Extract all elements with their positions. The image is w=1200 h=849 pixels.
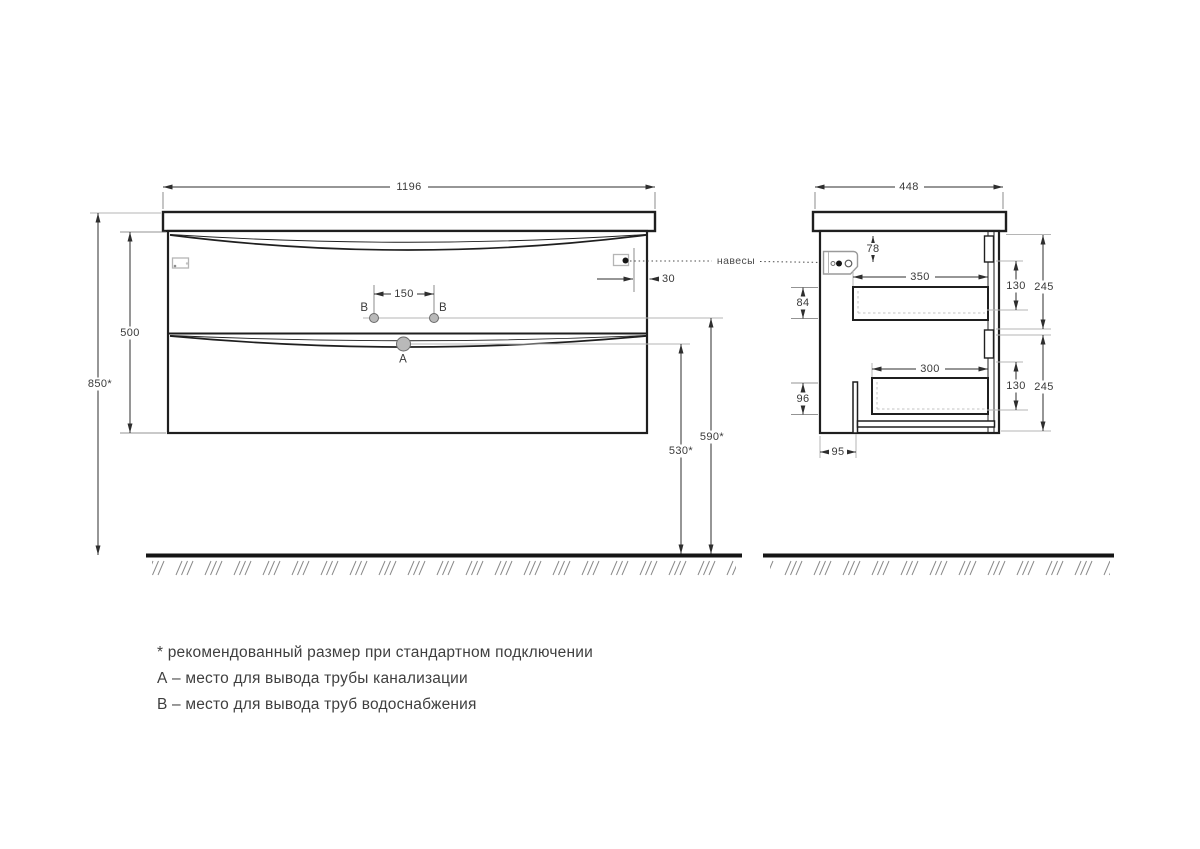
svg-text:530*: 530* xyxy=(669,445,694,457)
front-cabinet-body xyxy=(168,231,647,433)
svg-text:84: 84 xyxy=(796,297,809,309)
footnote-a: А – место для вывода трубы канализации xyxy=(157,666,593,692)
footnotes: * рекомендованный размер при стандартном… xyxy=(157,640,593,718)
vanity-technical-drawing: B B A 150 30 1196 xyxy=(0,0,1200,849)
dim-siphon-offset: 95 xyxy=(820,434,856,458)
svg-text:96: 96 xyxy=(796,393,809,405)
point-b-right-label: B xyxy=(439,302,447,314)
svg-text:150: 150 xyxy=(394,288,414,300)
svg-text:1196: 1196 xyxy=(396,181,421,193)
side-view: 448 78 350 84 300 xyxy=(791,181,1057,458)
svg-text:245: 245 xyxy=(1034,381,1054,393)
svg-text:245: 245 xyxy=(1034,281,1054,293)
svg-text:30: 30 xyxy=(662,273,675,285)
svg-text:300: 300 xyxy=(920,363,940,375)
footnote-b: В – место для вывода труб водоснабжения xyxy=(157,692,593,718)
dim-drawer2-height: 245 xyxy=(1030,335,1057,431)
svg-text:130: 130 xyxy=(1006,280,1026,292)
svg-text:590*: 590* xyxy=(700,431,725,443)
floor-hatch-right xyxy=(770,558,1110,576)
side-wall-rail-bottom xyxy=(985,330,994,358)
front-hanger-left xyxy=(173,258,189,268)
dim-front-width: 1196 xyxy=(163,181,655,209)
dim-a-floor-height: 530* xyxy=(667,344,695,554)
front-hanger-right xyxy=(614,255,629,266)
dim-drawer2-back: 96 xyxy=(791,383,818,415)
front-hanger-right-dot xyxy=(623,258,629,264)
drawing-canvas: B B A 150 30 1196 xyxy=(0,0,1200,849)
svg-text:95: 95 xyxy=(831,446,844,458)
floor xyxy=(146,554,1114,577)
svg-text:130: 130 xyxy=(1006,380,1026,392)
floor-hatch-left xyxy=(152,558,736,576)
svg-text:850*: 850* xyxy=(88,378,113,390)
point-a-label: A xyxy=(399,354,407,366)
dim-cabinet-height: 500 xyxy=(116,232,166,433)
svg-text:350: 350 xyxy=(910,271,930,283)
side-drawer1-box xyxy=(853,287,988,320)
svg-text:500: 500 xyxy=(120,327,140,339)
front-countertop xyxy=(163,212,655,231)
dim-drawer1-height: 245 xyxy=(1030,235,1057,329)
dim-drawer2-opening: 130 xyxy=(1003,362,1029,410)
side-wall-rail-top xyxy=(985,236,994,262)
footnote-asterisk: * рекомендованный размер при стандартном… xyxy=(157,640,593,666)
floor-line-left xyxy=(146,554,742,558)
dim-side-depth: 448 xyxy=(815,181,1003,209)
dim-drawer1-opening: 130 xyxy=(1003,261,1029,310)
dim-b-floor-height: 590* xyxy=(698,318,726,554)
svg-text:78: 78 xyxy=(866,243,879,255)
dim-overall-height: 850* xyxy=(85,213,161,555)
svg-text:448: 448 xyxy=(899,181,919,193)
side-hanger-bracket xyxy=(824,252,858,275)
point-b-left-label: B xyxy=(360,302,368,314)
floor-line-right xyxy=(763,554,1114,558)
hangers-label: навесы xyxy=(717,255,755,267)
dim-drawer1-back: 84 xyxy=(791,288,818,319)
hangers-callout: навесы xyxy=(630,255,826,267)
front-view: B B A 150 30 1196 xyxy=(85,181,726,555)
side-countertop xyxy=(813,212,1006,231)
point-a xyxy=(397,337,411,351)
